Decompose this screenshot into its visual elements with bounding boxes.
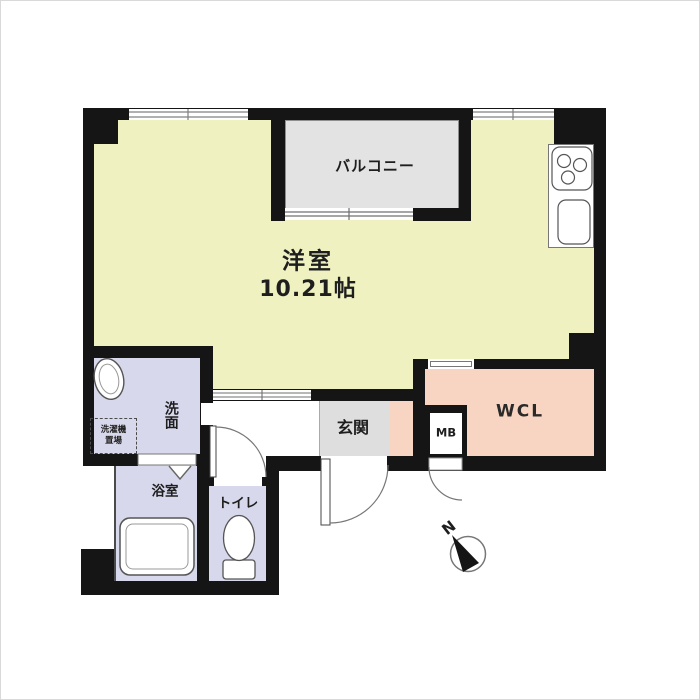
- wall-toilet-top: [209, 477, 266, 486]
- wall-top: [83, 108, 606, 120]
- laundry-space-box: 洗濯機 置場: [90, 418, 137, 454]
- label-laundry-line2: 置場: [105, 436, 122, 447]
- wall-left: [83, 108, 94, 466]
- label-toilet: トイレ: [218, 497, 259, 512]
- room-bathroom: [114, 465, 199, 581]
- label-main-room: 洋室: [282, 249, 334, 274]
- label-balcony: バルコニー: [335, 158, 415, 175]
- wall-bath-toilet: [197, 454, 209, 595]
- compass-icon: [451, 535, 486, 572]
- wall-right: [594, 108, 606, 471]
- wall-main-bottom-center: [213, 389, 425, 401]
- wall-balcony-right: [459, 108, 471, 221]
- wall-washroom-bottom-left: [83, 454, 138, 466]
- wall-bottom-right: [279, 456, 606, 471]
- label-wcl: WCL: [496, 403, 544, 422]
- wall-main-bottom-left: [83, 346, 213, 358]
- compass-north-label: N: [439, 518, 459, 539]
- label-entrance: 玄関: [337, 419, 369, 437]
- label-laundry-line1: 洗濯機: [101, 425, 127, 436]
- label-washroom: 洗面: [162, 401, 177, 429]
- label-bathroom: 浴室: [152, 485, 179, 500]
- wall-notch-filler: [81, 549, 114, 581]
- kitchen-counter: [548, 144, 594, 248]
- label-main-room-size: 10.21帖: [259, 278, 357, 302]
- label-meter-box: MB: [436, 427, 456, 440]
- floor-plan: 洋室 10.21帖 バルコニー WCL 玄関 MB 洗面 洗濯機 置場 浴室 ト…: [0, 0, 700, 700]
- wall-wcl-top: [413, 359, 606, 369]
- wall-wcl-left: [413, 359, 425, 471]
- wall-balcony-left: [271, 108, 285, 221]
- wall-bottom-left-block: [81, 581, 279, 595]
- wall-balcony-bottom-right: [413, 208, 463, 221]
- wall-toilet-right: [266, 456, 279, 595]
